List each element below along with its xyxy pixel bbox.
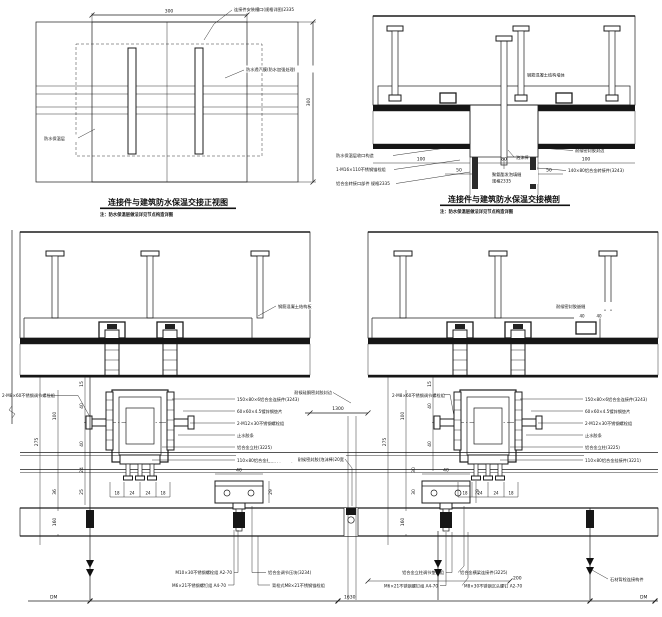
insulation-facing xyxy=(368,375,658,378)
dim-300-right: 300 xyxy=(306,98,312,107)
dim-100: 100 xyxy=(400,412,406,421)
dim-30a: 30 xyxy=(411,467,417,473)
vertical-section-right: 40 29 275 100 160 15 40 40 30 30 18 24 2… xyxy=(366,232,662,600)
callout-screw-a470: M6×21不锈钢螺钉组 A4-70 xyxy=(384,583,438,590)
dim-275: 275 xyxy=(382,438,388,447)
bottom-dimension: DM 1630 DM xyxy=(28,595,658,604)
insulation-facing xyxy=(373,144,470,149)
dim-18b: 18 xyxy=(160,491,166,496)
callout-seal-top: 耐候密封胶嵌缝 xyxy=(556,303,586,310)
cad-drawing: 300 300 连接件安装槽口(规格详图)2335 防水透汽膜(防水加强处理) … xyxy=(0,0,662,617)
dim-18b: 18 xyxy=(508,491,514,496)
center-anchor-head xyxy=(496,36,512,41)
insulation-facing xyxy=(20,375,310,378)
dim-29: 29 xyxy=(268,489,274,495)
dim-160: 160 xyxy=(52,518,58,527)
dim-36: 36 xyxy=(52,489,58,495)
sealant-bar xyxy=(472,157,478,189)
label-adapter-part: 140×80铝合金转接件(3243) xyxy=(568,167,624,174)
dim-40-slab-b: 40 xyxy=(596,314,602,319)
dim-40: 40 xyxy=(443,468,449,474)
front-view-title: 连接件与建筑防水保温交接正视图 xyxy=(108,197,228,207)
waterproof-membrane xyxy=(368,338,658,344)
embedded-connector xyxy=(157,322,183,376)
dim-25: 25 xyxy=(79,489,85,495)
embed-plate xyxy=(556,93,572,103)
t-bolt xyxy=(394,251,412,318)
callout-slab: 钢筋混凝土结构板 xyxy=(278,303,312,310)
anchor-bolt xyxy=(513,26,529,101)
dim-275: 275 xyxy=(34,438,40,447)
callout-adjust-bolt: 2-M8×60不锈钢调节螺栓组 xyxy=(392,392,445,399)
adjuster-bracket: 40 29 xyxy=(215,468,274,532)
label-anchor-bolt: 1-M16×110不锈钢锚栓组 xyxy=(336,166,386,173)
dim-300-top: 300 xyxy=(165,9,174,15)
bottom-anchor xyxy=(86,377,94,600)
dim-30b: 30 xyxy=(411,489,417,495)
side-bolt-left xyxy=(440,419,454,426)
dim-span-1300: 1300 xyxy=(305,406,371,416)
dim-15: 15 xyxy=(427,381,433,387)
dim-18a: 18 xyxy=(462,491,468,496)
dim-100-right: 100 xyxy=(582,157,591,163)
callout-shim: 60×60×4.5镀锌钢垫片 xyxy=(237,408,282,415)
callout-gasket: 止水胶条 xyxy=(585,432,603,439)
side-bolt-right xyxy=(174,419,188,426)
dim-24a: 24 xyxy=(129,491,135,496)
callout-mullion: 铝合金立柱(3225) xyxy=(237,444,272,451)
side-bolt-left xyxy=(92,419,106,426)
dim-24b: 24 xyxy=(493,491,499,496)
dim-15: 15 xyxy=(79,381,85,387)
embedded-connector xyxy=(447,322,473,376)
label-adapter: 铝合金转接口部件 规格2335 xyxy=(336,180,390,187)
backer-rod xyxy=(348,517,354,523)
waterproof-membrane xyxy=(373,105,470,111)
callout-bolt-set: 2-M12×30不锈钢螺栓组 xyxy=(237,420,284,427)
bottom-anchor xyxy=(434,531,442,600)
dim-front-height: 300 xyxy=(298,20,316,185)
label-membrane: 防水透汽膜(防水加强处理) xyxy=(246,66,296,73)
callout-pressure-block: 铝合金调节压块(3234) xyxy=(268,569,312,576)
dim-50-right: 50 xyxy=(546,168,552,174)
dim-18a: 18 xyxy=(114,491,120,496)
drawing-sheet: 300 300 连接件安装槽口(规格详图)2335 防水透汽膜(防水加强处理) … xyxy=(0,0,662,617)
embed-plate xyxy=(440,93,456,103)
callout-shim: 60×60×4.5镀锌钢垫片 xyxy=(585,408,630,415)
label-seal-edge: 耐候密封胶封边 xyxy=(575,147,605,154)
datum-left: DM xyxy=(50,595,57,601)
anchor-bolt xyxy=(604,26,620,101)
dim-160: 160 xyxy=(400,518,406,527)
hidden-connector-outline xyxy=(76,44,262,156)
callout-seal-joint: 耐候密封胶(泡沫棒)20宽 xyxy=(298,456,345,463)
dim-40: 40 xyxy=(236,468,242,474)
label-foam-fill-2: 规格2335 xyxy=(492,178,511,185)
center-anchor-shaft xyxy=(501,40,507,165)
dim-40-slab-a: 40 xyxy=(579,314,585,319)
callout-bolt-set: 2-M12×30不锈钢螺栓组 xyxy=(585,420,632,427)
dim-100-left: 100 xyxy=(417,157,426,163)
label-closure: 防水保温层收口构造 xyxy=(336,152,375,159)
label-foam-rod: 泡沫棒 xyxy=(516,154,529,161)
t-bolt xyxy=(489,251,507,318)
callout-adjust-bolt: 2-M8×60不锈钢调节螺栓组 xyxy=(2,392,55,399)
callout-stack: 150×80×6铝合金连接件(3243) 60×60×4.5镀锌钢垫片 2-M1… xyxy=(152,396,332,464)
callout-stone-backbolt: 石材背栓连接构件 xyxy=(610,576,644,583)
label-anchor-slot: 连接件安装槽口(规格详图)2335 xyxy=(234,6,294,13)
callout-beam-connector: 铝合金横梁连接件(3225) xyxy=(460,569,508,576)
callout-hook: 110×80铝合金挂接件(3221) xyxy=(585,457,641,464)
embedded-connector xyxy=(505,322,531,376)
callout-connector: 150×80×6铝合金连接件(3243) xyxy=(585,396,647,403)
callout-seal-edge: 耐候硅酮密封胶封边 xyxy=(294,389,333,396)
label-wall: 钢筋混凝土结构墙体 xyxy=(527,72,566,79)
label-foam-fill-1: 聚氨酯发泡填缝 xyxy=(492,171,522,178)
stone-panel-band xyxy=(20,508,658,536)
vertical-section-left: 40 29 275 100 36 160 15 40 40 24 25 18 2… xyxy=(2,232,334,600)
dim-24a: 24 xyxy=(477,491,483,496)
embed-plate xyxy=(576,322,596,334)
anchor-bolt xyxy=(387,26,403,101)
connector-anchor-zone xyxy=(92,22,247,182)
anchor-slot-left xyxy=(128,48,136,154)
panel-joint-sealant xyxy=(346,508,356,515)
callout-csk-screw: M8×30不锈钢沉头螺钉 A2-70 xyxy=(464,583,522,590)
dim-24: 24 xyxy=(79,467,85,473)
insulation-layer xyxy=(538,111,635,144)
title-underline xyxy=(100,208,236,210)
callout-mullion: 铝合金立柱(3225) xyxy=(585,444,620,451)
callout-connector: 150×80×6铝合金连接件(3243) xyxy=(237,396,299,403)
insulation-layer xyxy=(373,111,470,144)
side-bolt-right xyxy=(522,419,536,426)
dim-200: 200 xyxy=(513,576,522,582)
dim-1300: 1300 xyxy=(332,406,344,412)
leader-anchor-slot xyxy=(204,10,232,40)
callout-gasket: 止水胶条 xyxy=(237,432,255,439)
section-view-title: 连接件与建筑防水保温交接横剖 xyxy=(448,194,560,204)
embedded-connector xyxy=(99,322,125,376)
label-insulation: 防水保温层 xyxy=(44,135,65,142)
datum-right: DM xyxy=(640,595,647,601)
anchor-slot-right xyxy=(195,48,203,154)
right-anchor xyxy=(586,508,594,600)
t-bolt xyxy=(141,251,159,318)
callout-shim-set: 铝合金立柱调节垫片组 xyxy=(402,569,444,576)
callout-stack: 150×80×6铝合金连接件(3243) 60×60×4.5镀锌钢垫片 2-M1… xyxy=(500,396,662,464)
cross-section-view: 100 80 100 50 50 防水保温层收口构造 1-M16×110不锈钢锚… xyxy=(336,16,635,215)
t-bolt xyxy=(46,251,64,318)
dim-40b: 40 xyxy=(79,441,85,447)
bottom-callouts: M10×30不锈钢螺栓组 A2-70 M6×21不锈钢螺钉组 A4-70 铝合金… xyxy=(172,506,325,589)
title-underline xyxy=(440,205,570,207)
dim-1630: 1630 xyxy=(344,595,356,601)
dim-50-left: 50 xyxy=(456,168,462,174)
waterproof-membrane xyxy=(20,338,310,344)
callout-screw-a470: M6×21不锈钢螺钉组 A4-70 xyxy=(172,582,226,589)
front-view-note: 注：防水保温层做法详见节点构造详图 xyxy=(100,211,174,218)
dim-100: 100 xyxy=(52,412,58,421)
section-view-note: 注：防水保温层做法详见节点构造详图 xyxy=(440,208,514,215)
callout-bolt-a270: M10×30不锈钢螺栓组 A2-70 xyxy=(175,569,232,576)
dim-40a: 40 xyxy=(79,403,85,409)
callout-back-bolt: 背栓式M8×21不锈钢锚栓组 xyxy=(272,582,325,589)
stone-panel-hatch xyxy=(20,508,658,536)
dim-40a: 40 xyxy=(427,403,433,409)
dim-24b: 24 xyxy=(145,491,151,496)
dim-40b: 40 xyxy=(427,441,433,447)
t-bolt xyxy=(251,251,269,318)
front-view: 300 300 连接件安装槽口(规格详图)2335 防水透汽膜(防水加强处理) … xyxy=(36,6,335,219)
waterproof-membrane xyxy=(538,105,635,111)
